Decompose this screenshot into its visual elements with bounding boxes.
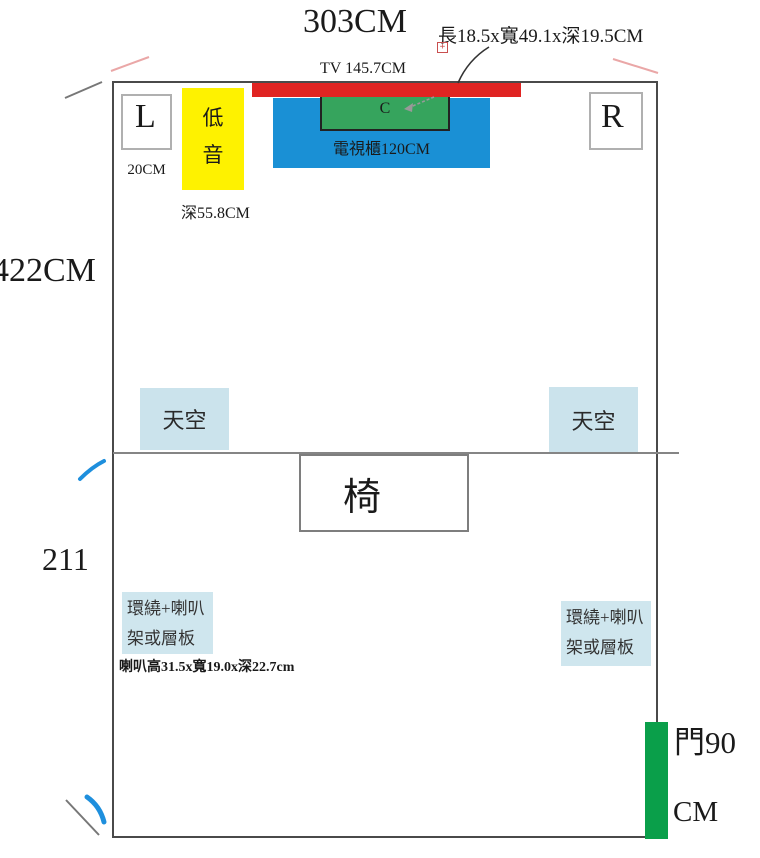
surround-left-line2: 架或層板	[127, 624, 213, 654]
chair-box: 椅	[299, 454, 469, 532]
door-label-line2: CM	[673, 796, 718, 829]
center-speaker-dims-label: 長18.5x寬49.1x深19.5CM	[438, 21, 643, 48]
center-speaker-label: C	[380, 100, 391, 117]
center-speaker-box: C	[320, 95, 450, 131]
corner-mark-top-left-pink	[111, 57, 149, 71]
upper-room-depth-label: 422CM	[0, 252, 96, 290]
right-speaker-box: R	[589, 92, 643, 150]
surround-speaker-dims-label: 喇叭高31.5x寬19.0x深22.7cm	[119, 656, 294, 676]
surround-left-line1: 環繞+喇叭	[127, 594, 213, 624]
corner-mark-top-right-pink	[613, 59, 658, 73]
surround-right-line1: 環繞+喇叭	[566, 603, 651, 633]
floor-plan-canvas: 303CM 長18.5x寬49.1x深19.5CM + TV 145.7CM L…	[0, 0, 760, 858]
blue-mark-bottom-left	[87, 797, 104, 822]
right-speaker-label: R	[601, 98, 624, 135]
callout-line-center-speaker	[458, 47, 489, 83]
annotation-mark-icon: +	[437, 42, 448, 53]
left-speaker-offset-label: 20CM	[119, 162, 174, 179]
surround-right-box: 環繞+喇叭 架或層板	[561, 601, 651, 666]
tv-cabinet-label: 電視櫃120CM	[273, 135, 490, 159]
ceiling-speaker-left-label: 天空	[162, 403, 206, 435]
left-speaker-box: L	[121, 94, 172, 150]
ceiling-speaker-right-box: 天空	[549, 387, 638, 452]
tv-width-label: TV 145.7CM	[302, 60, 424, 78]
blue-mark-mid-left	[80, 461, 104, 479]
lower-room-depth-label: 211	[42, 541, 89, 578]
corner-mark-bottom-left-gray	[66, 800, 99, 835]
tv-bar	[252, 83, 521, 97]
room-width-label: 303CM	[296, 3, 414, 41]
subwoofer-depth-label: 深55.8CM	[181, 199, 250, 223]
chair-label: 椅	[343, 466, 381, 521]
door-label-line1: 門90	[674, 717, 736, 762]
subwoofer-label: 低音	[201, 100, 225, 174]
corner-mark-top-left-gray	[65, 82, 102, 98]
left-speaker-label: L	[135, 98, 156, 135]
ceiling-speaker-left-box: 天空	[140, 388, 229, 450]
surround-right-line2: 架或層板	[566, 633, 651, 663]
ceiling-speaker-right-label: 天空	[571, 404, 615, 436]
subwoofer-box: 低音	[182, 88, 244, 190]
door-bar	[645, 722, 668, 839]
surround-left-box: 環繞+喇叭 架或層板	[122, 592, 213, 654]
